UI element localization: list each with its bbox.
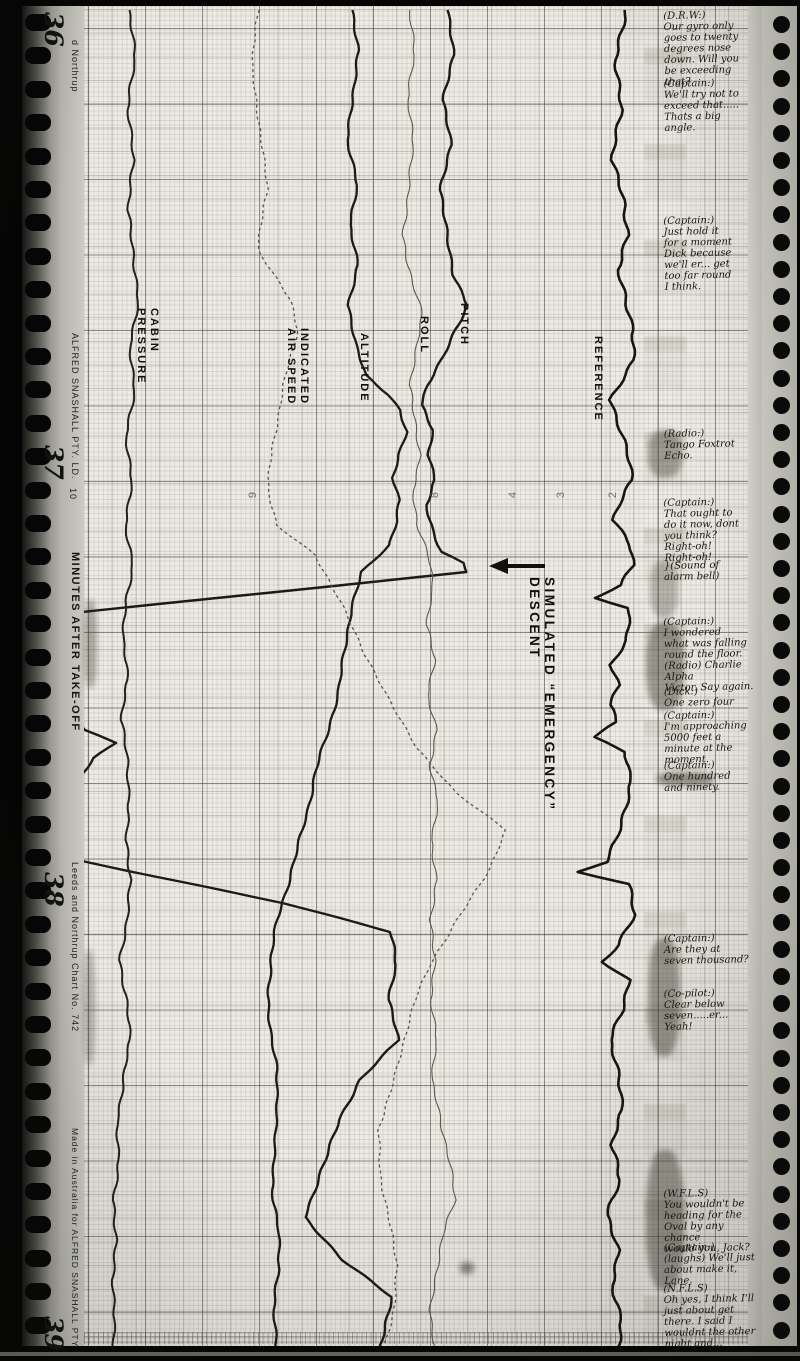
film-frame-number: 36: [39, 12, 68, 47]
annotation-note: }(Sound of alarm bell): [664, 559, 756, 583]
annotation-note: (Captain:) Just hold it for a moment Dic…: [663, 214, 757, 293]
annotation-note: (Captain:) I'm approaching 5000 feet a m…: [663, 709, 756, 766]
trace-roll: [402, 10, 456, 1350]
film-edge-line: [0, 1352, 800, 1356]
annotation-note: (Co-pilot:) Clear below seven.....er... …: [664, 987, 757, 1033]
annotation-note: (D.R.W:) Our gyro only goes to twenty de…: [663, 9, 757, 88]
trace-label-cabin-pressure: CABIN PRESSURE: [134, 308, 160, 385]
scale-digit: 9: [247, 492, 259, 498]
annotation-note: (Captain:) One hundred and ninety.: [664, 759, 757, 794]
trace-indicated-air-speed: [252, 10, 505, 1350]
film-frame-number: 37: [39, 445, 68, 480]
trace-label-pitch: PITCH: [457, 303, 470, 346]
film-frame-number: 39: [39, 1316, 68, 1351]
scale-digit: 4: [507, 492, 519, 498]
event-title: SIMULATED “EMERGENCY” DESCENT: [527, 577, 557, 820]
film-photo-of-strip-chart: d Northrup ALFRED SNASHALL PTY. LD. 10 M…: [0, 0, 800, 1361]
annotation-note: (N.F.L.S) Oh yes, I think I'll just abou…: [663, 1282, 756, 1350]
scale-digit: 3: [555, 492, 567, 498]
trace-label-reference: REFERENCE: [591, 336, 604, 422]
film-frame-number: 38: [39, 872, 68, 907]
descent-arrow-icon: [489, 558, 545, 574]
trace-reference: [578, 10, 636, 1350]
trace-label-altitude: ALTITUDE: [357, 333, 370, 403]
trace-altitude: [268, 10, 408, 1350]
annotation-note: (Dick:) One zero four: [664, 685, 756, 709]
trace-cabin-pressure: [112, 10, 138, 1350]
trace-label-roll: ROLL: [417, 316, 430, 354]
annotation-note: (Captain:) Are they at seven thousand?: [664, 932, 757, 967]
trace-label-indicated-air-speed: INDICATED AIR SPEED: [284, 328, 310, 405]
annotation-note: (Captain:) That ought to do it now, dont…: [663, 496, 756, 564]
annotation-note: (Captain:) (laughs) We'll just about mak…: [664, 1241, 757, 1287]
scale-digit: 2: [607, 492, 619, 498]
annotation-note: (Captain:) We'll try not to exceed that.…: [663, 77, 756, 134]
annotation-note: (Captain:) I wondered what was falling r…: [663, 615, 757, 694]
annotation-note: (Radio:) Tango Foxtrot Echo.: [664, 427, 757, 462]
trace-pitch: [62, 10, 466, 1350]
scale-digit: 8: [429, 492, 441, 498]
